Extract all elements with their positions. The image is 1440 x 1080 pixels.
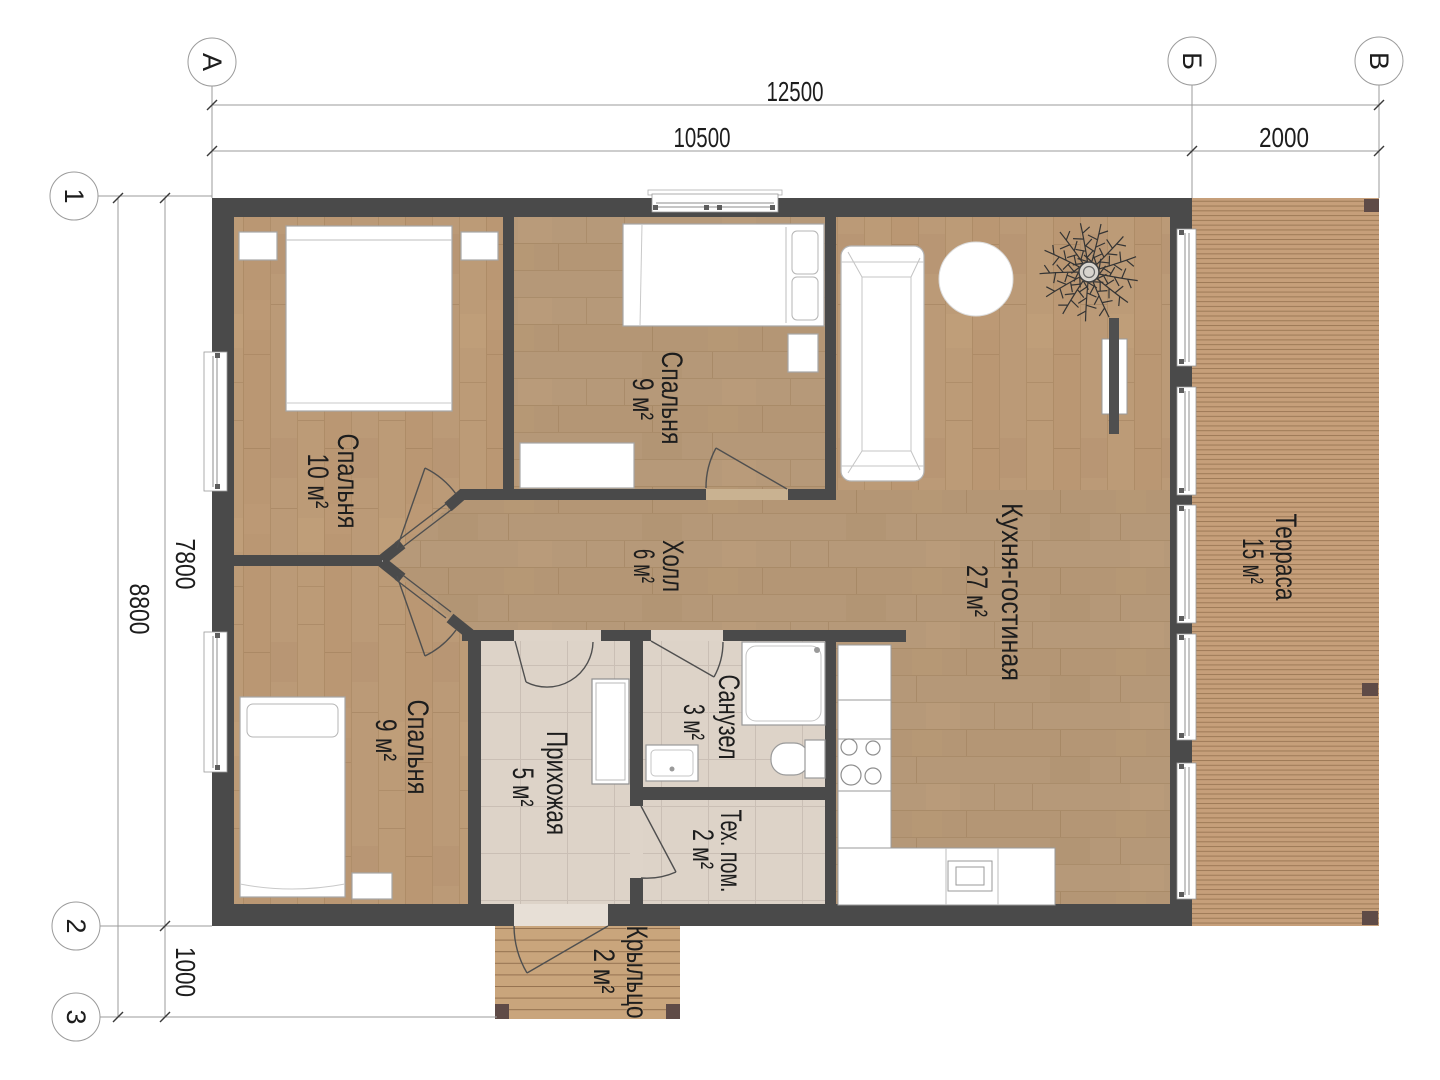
- svg-text:Спальня: Спальня: [401, 700, 434, 795]
- svg-text:9 м²: 9 м²: [626, 378, 659, 420]
- svg-text:Крыльцо: Крыльцо: [620, 926, 653, 1019]
- svg-text:В: В: [1364, 52, 1394, 70]
- svg-text:6 м²: 6 м²: [627, 549, 660, 583]
- svg-text:9 м²: 9 м²: [369, 719, 402, 761]
- svg-text:8800: 8800: [124, 584, 155, 635]
- svg-text:1000: 1000: [170, 947, 201, 997]
- svg-text:2 м²: 2 м²: [587, 949, 620, 994]
- svg-text:А: А: [197, 53, 227, 71]
- svg-text:Санузел: Санузел: [712, 675, 745, 760]
- svg-text:5 м²: 5 м²: [506, 768, 539, 807]
- svg-text:2000: 2000: [1259, 122, 1309, 153]
- svg-text:7800: 7800: [170, 539, 201, 590]
- svg-text:3: 3: [61, 1009, 91, 1024]
- svg-text:2 м²: 2 м²: [686, 829, 719, 869]
- svg-text:10 м²: 10 м²: [301, 454, 334, 509]
- svg-text:15 м²: 15 м²: [1236, 538, 1269, 584]
- svg-text:3 м²: 3 м²: [677, 704, 710, 740]
- svg-text:Кухня-гостиная: Кухня-гостиная: [995, 503, 1028, 681]
- svg-text:27 м²: 27 м²: [960, 565, 993, 617]
- svg-text:Терраса: Терраса: [1269, 514, 1302, 601]
- svg-text:10500: 10500: [674, 122, 731, 153]
- svg-text:Спальня: Спальня: [331, 434, 364, 529]
- svg-text:Б: Б: [1177, 52, 1207, 70]
- svg-text:2: 2: [61, 918, 91, 933]
- svg-text:12500: 12500: [767, 76, 824, 107]
- svg-text:1: 1: [59, 188, 89, 203]
- svg-text:Прихожая: Прихожая: [540, 731, 573, 835]
